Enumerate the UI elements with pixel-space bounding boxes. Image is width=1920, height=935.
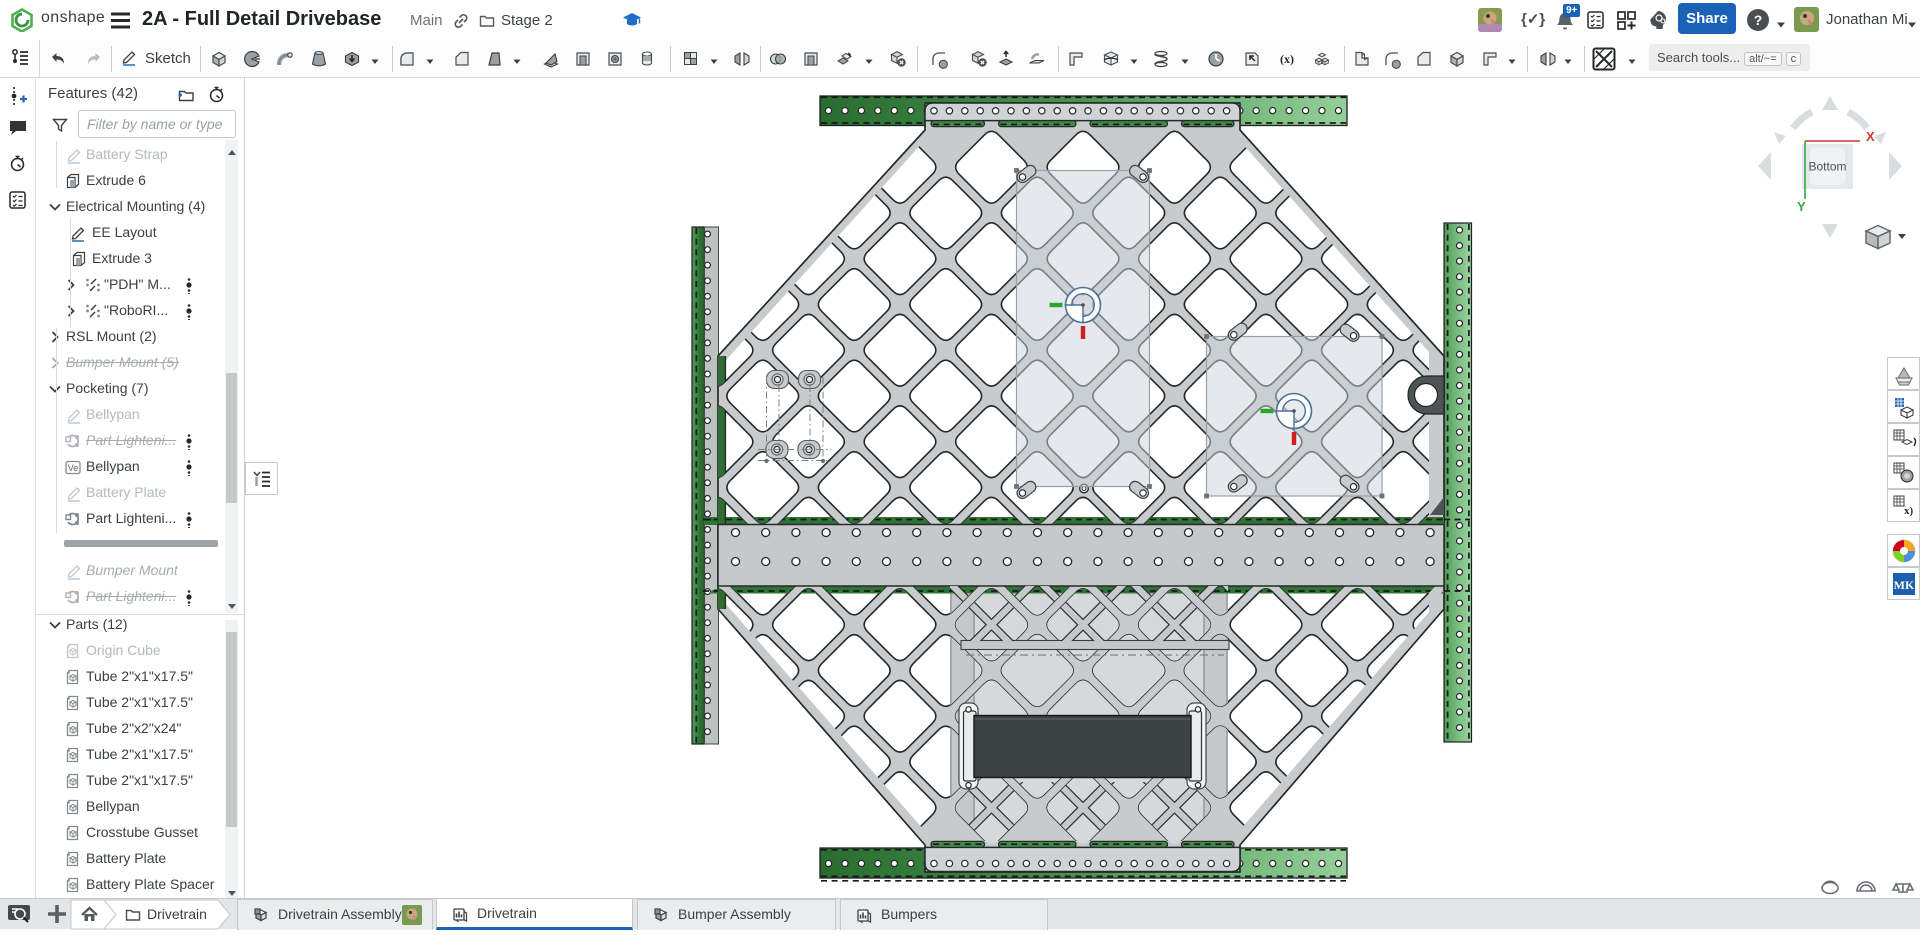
svg-text:Ve: Ve	[68, 463, 79, 473]
svg-text:X: X	[1866, 129, 1875, 144]
svg-text:Bottom: Bottom	[1808, 160, 1846, 174]
svg-text:Y: Y	[1797, 199, 1806, 214]
svg-text:x): x)	[1904, 505, 1914, 517]
svg-text:(x): (x)	[1280, 52, 1294, 66]
svg-text:MK: MK	[1894, 578, 1915, 592]
svg-text:?: ?	[1754, 12, 1763, 28]
